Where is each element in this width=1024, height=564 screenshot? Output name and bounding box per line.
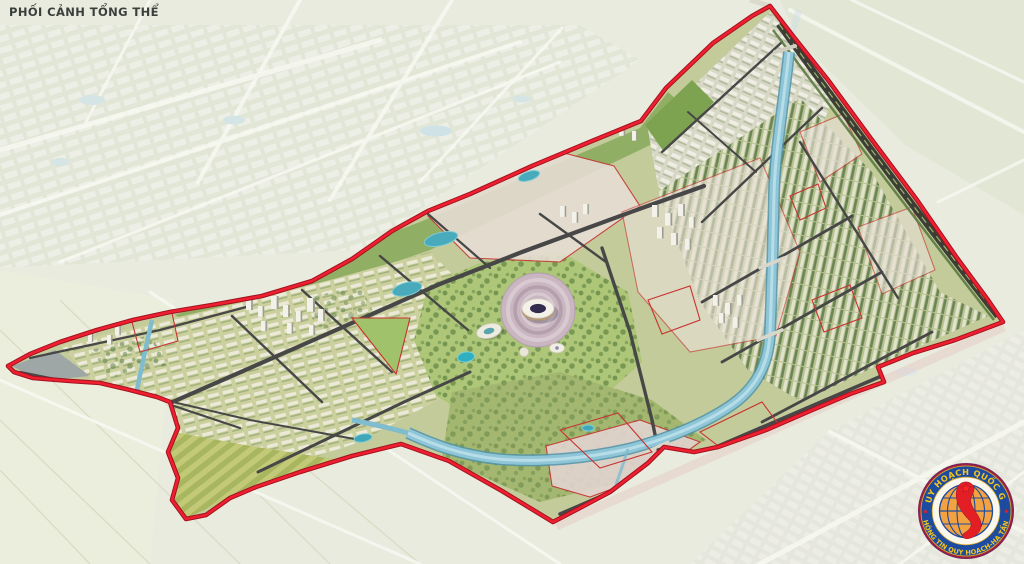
masterplan-screenshot: PHỐI CẢNH TỔNG THỂ QUY HOẠCH QUỐC GIA TH… <box>0 0 1024 564</box>
masterplan-rendering: PHỐI CẢNH TỔNG THỂ QUY HOẠCH QUỐC GIA TH… <box>0 0 1024 564</box>
page-title: PHỐI CẢNH TỔNG THỂ <box>9 2 159 19</box>
aquatic-venue <box>519 347 528 356</box>
planning-agency-logo: QUY HOẠCH QUỐC GIA THÔNG TIN QUY HOẠCH-H… <box>918 463 1014 559</box>
